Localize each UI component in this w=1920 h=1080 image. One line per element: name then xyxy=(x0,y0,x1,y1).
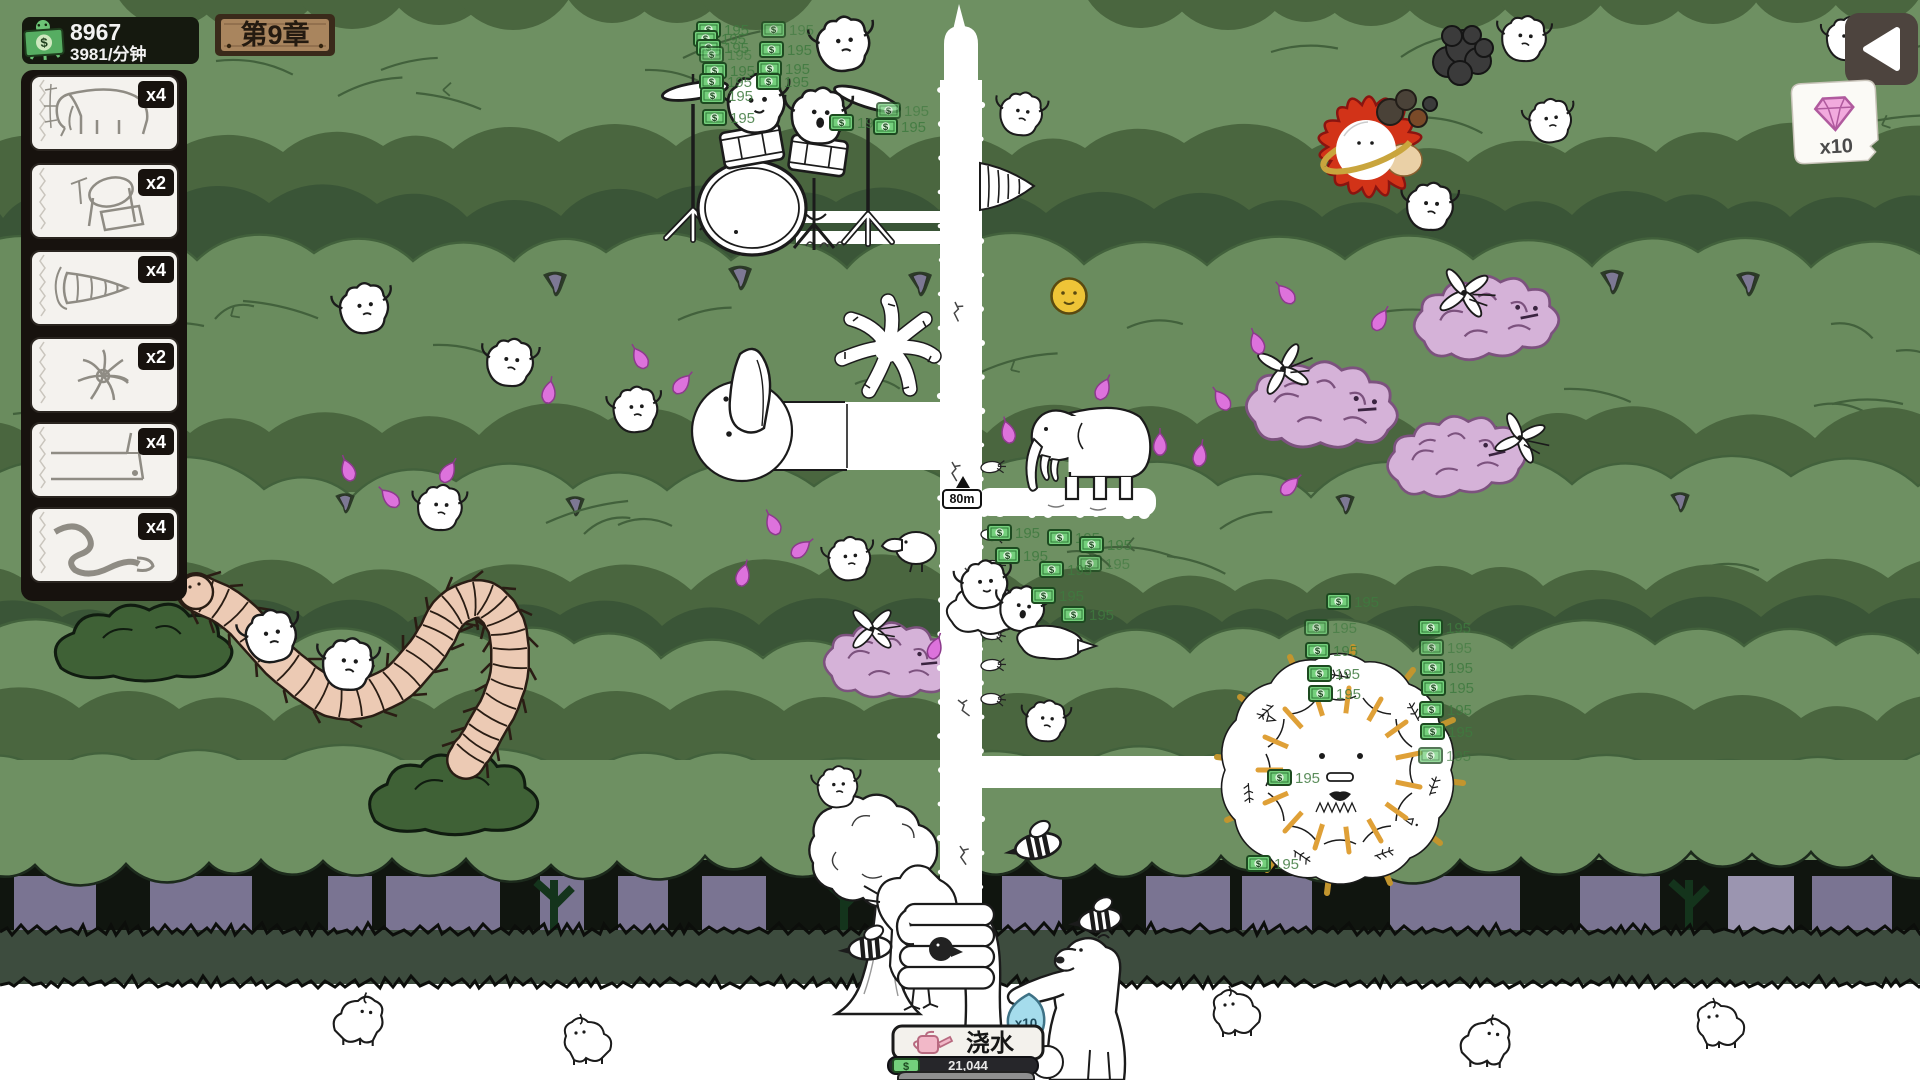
svg-text:$: $ xyxy=(766,77,772,88)
svg-text:195: 195 xyxy=(1067,562,1092,579)
svg-text:195: 195 xyxy=(1089,607,1114,624)
svg-text:195: 195 xyxy=(1335,666,1360,683)
svg-text:$: $ xyxy=(1277,773,1283,784)
svg-text:195: 195 xyxy=(1354,594,1379,611)
svg-text:195: 195 xyxy=(1105,556,1130,573)
svg-text:$: $ xyxy=(839,118,845,129)
svg-text:$: $ xyxy=(1430,727,1436,738)
svg-text:195: 195 xyxy=(1446,620,1471,637)
svg-text:195: 195 xyxy=(789,22,814,39)
svg-text:$: $ xyxy=(1336,597,1342,608)
svg-text:$: $ xyxy=(1057,533,1063,544)
svg-text:195: 195 xyxy=(1274,856,1299,873)
svg-text:195: 195 xyxy=(1023,548,1048,565)
svg-text:195: 195 xyxy=(1015,525,1040,542)
svg-text:195: 195 xyxy=(1449,680,1474,697)
svg-text:195: 195 xyxy=(1447,640,1472,657)
svg-text:195: 195 xyxy=(904,103,929,120)
svg-text:195: 195 xyxy=(1448,660,1473,677)
svg-text:$: $ xyxy=(1429,643,1435,654)
svg-text:$: $ xyxy=(1005,551,1011,562)
svg-text:195: 195 xyxy=(901,119,926,136)
svg-text:$: $ xyxy=(997,528,1003,539)
svg-text:3981/分钟: 3981/分钟 xyxy=(70,44,147,64)
svg-text:$: $ xyxy=(1428,623,1434,634)
svg-text:$: $ xyxy=(1256,859,1262,870)
svg-text:$: $ xyxy=(1314,623,1320,634)
svg-text:195: 195 xyxy=(1336,686,1361,703)
svg-text:第9章: 第9章 xyxy=(240,19,309,50)
svg-text:195: 195 xyxy=(1295,770,1320,787)
svg-text:195: 195 xyxy=(728,88,753,105)
svg-text:x4: x4 xyxy=(146,85,166,105)
svg-text:x2: x2 xyxy=(146,173,166,193)
svg-text:195: 195 xyxy=(1447,702,1472,719)
svg-text:浇水: 浇水 xyxy=(966,1030,1015,1057)
svg-text:195: 195 xyxy=(1059,588,1084,605)
svg-text:195: 195 xyxy=(787,42,812,59)
svg-text:$: $ xyxy=(1429,705,1435,716)
svg-text:$: $ xyxy=(709,77,715,88)
svg-text:$: $ xyxy=(1041,591,1047,602)
svg-text:$: $ xyxy=(1049,565,1055,576)
svg-text:$: $ xyxy=(1317,669,1323,680)
svg-text:195: 195 xyxy=(1448,724,1473,741)
svg-text:8967: 8967 xyxy=(70,19,121,45)
svg-text:x4: x4 xyxy=(146,260,166,280)
svg-text:$: $ xyxy=(883,122,889,133)
svg-text:21,044: 21,044 xyxy=(948,1058,989,1073)
svg-text:$: $ xyxy=(1430,663,1436,674)
svg-text:x2: x2 xyxy=(146,347,166,367)
svg-text:x10: x10 xyxy=(1819,135,1853,159)
svg-text:195: 195 xyxy=(730,110,755,127)
svg-text:195: 195 xyxy=(1332,620,1357,637)
svg-text:195: 195 xyxy=(1333,643,1358,660)
svg-text:195: 195 xyxy=(784,74,809,91)
svg-text:195: 195 xyxy=(727,47,752,64)
svg-text:195: 195 xyxy=(1446,748,1471,765)
svg-text:$: $ xyxy=(710,91,716,102)
svg-text:$: $ xyxy=(1431,683,1437,694)
svg-text:$: $ xyxy=(1318,689,1324,700)
svg-text:$: $ xyxy=(712,113,718,124)
svg-text:x4: x4 xyxy=(146,517,166,537)
svg-text:$: $ xyxy=(1315,646,1321,657)
svg-text:$: $ xyxy=(886,106,892,117)
svg-text:$: $ xyxy=(771,25,777,36)
svg-text:195: 195 xyxy=(1107,537,1132,554)
svg-text:80m: 80m xyxy=(949,492,974,506)
svg-text:$: $ xyxy=(1428,751,1434,762)
svg-text:$: $ xyxy=(769,45,775,56)
svg-text:$: $ xyxy=(1089,540,1095,551)
svg-text:x4: x4 xyxy=(146,432,166,452)
svg-text:$: $ xyxy=(709,50,715,61)
svg-text:$: $ xyxy=(1071,610,1077,621)
